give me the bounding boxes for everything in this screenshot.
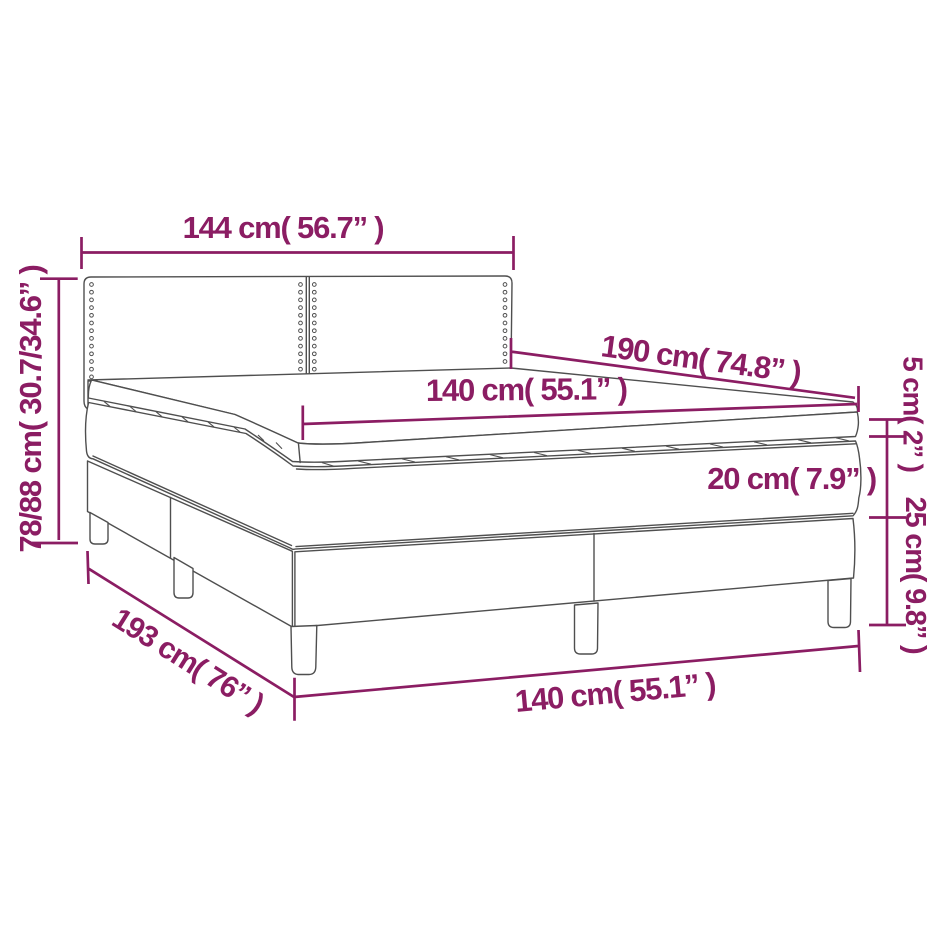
- svg-text:25 cm( 9.8” ): 25 cm( 9.8” ): [899, 497, 931, 654]
- svg-text:144 cm( 56.7” ): 144 cm( 56.7” ): [183, 210, 384, 245]
- svg-text:78/88 cm( 30.7/34.6” ): 78/88 cm( 30.7/34.6” ): [13, 265, 48, 552]
- svg-text:5 cm( 2” ): 5 cm( 2” ): [898, 356, 929, 472]
- svg-text:20 cm( 7.9” ): 20 cm( 7.9” ): [707, 461, 876, 496]
- svg-text:140 cm( 55.1” ): 140 cm( 55.1” ): [426, 371, 627, 408]
